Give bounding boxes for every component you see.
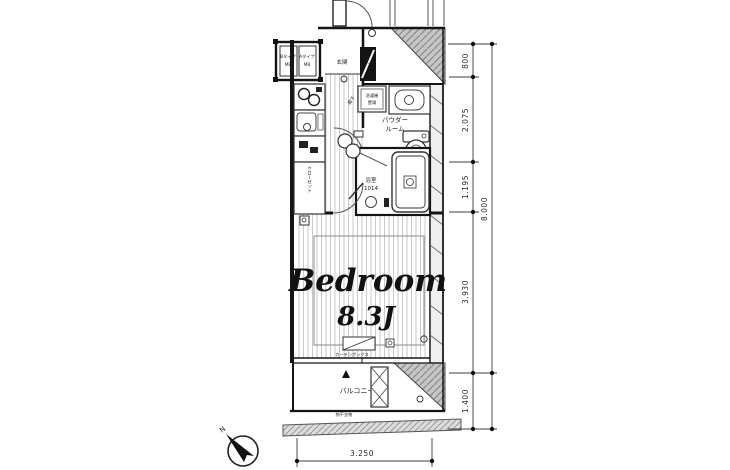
entrance-door-leaf [333, 0, 346, 26]
hatched-void-top-right [391, 28, 445, 84]
entrance-door-arc [346, 1, 372, 27]
bathtub-icon [392, 152, 429, 212]
powder-room-label2: ルーム [385, 125, 405, 133]
door-stop-icon [369, 30, 376, 37]
dim-3250: 3.250 [350, 449, 374, 458]
dim-total-8000: 8.000 [480, 197, 489, 221]
laundry-label1: 洗濯機 [366, 92, 379, 99]
entrance-label: 玄関 [336, 58, 348, 66]
compass-icon: N [218, 425, 258, 466]
bath-label1: 浴室 [365, 176, 377, 184]
drying-fixture-label: 物干金物 [336, 411, 353, 418]
curtain-box-label: カーテンボックス [335, 351, 368, 358]
powder-room-label1: パウダー [382, 115, 408, 124]
dim-1195: 1.195 [461, 175, 470, 199]
closet: クローゼット [294, 162, 325, 214]
floor-plan: Bタイプ MB Aタイプ MB 玄関 下足入 洗濯機 置場 パウダー ルーム [0, 0, 730, 470]
floor-outlet-icon [386, 339, 394, 347]
compass-north-label: N [218, 425, 227, 435]
hose-bib-icon [417, 396, 423, 402]
balcony-label: バルコニー [340, 387, 375, 395]
shower-icon [384, 198, 389, 207]
shoe-box-label: 下足入 [365, 52, 371, 65]
counter-unit-icon [294, 136, 325, 162]
drain-triangle-icon [342, 370, 350, 378]
dim-1400: 1.400 [461, 389, 470, 413]
pipe-space-icon [300, 216, 309, 225]
meter-boxes: Bタイプ MB Aタイプ MB [273, 39, 323, 82]
floorplan-page: Bタイプ MB Aタイプ MB 玄関 下足入 洗濯機 置場 パウダー ルーム [0, 0, 730, 470]
mb-right-label: Aタイプ [299, 53, 315, 60]
dim-800: 800 [461, 53, 470, 69]
kitchen-strip [294, 84, 325, 162]
closet-label: クローゼット [307, 166, 312, 194]
partition-panel-icon [371, 367, 388, 407]
hatched-void-bottom-right [394, 363, 445, 410]
laundry-label2: 置場 [368, 99, 377, 106]
dim-2075: 2.075 [461, 108, 470, 132]
bedroom-label: Bedroom [288, 263, 447, 299]
bathroom: 浴室 1014 [356, 148, 430, 215]
bath-label2: 1014 [364, 186, 378, 192]
mb-left-label: Bタイプ [280, 53, 296, 60]
dim-3930: 3.930 [461, 280, 470, 304]
balcony-edge-hatch [283, 419, 461, 436]
bedroom-size-label: 8.3J [336, 302, 396, 332]
mb-right-label2: MB [304, 62, 311, 67]
corridor-railing [390, 0, 444, 26]
laundry-space: 洗濯機 置場 [358, 86, 386, 112]
